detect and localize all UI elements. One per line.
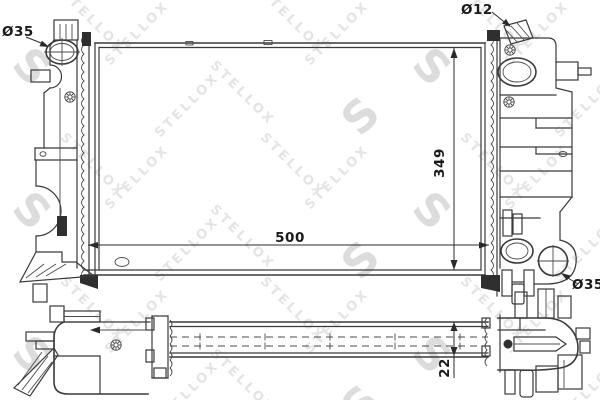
screw-icon: [65, 92, 75, 102]
radiator-drawing: SSTELLOXSTELLOXSTELLOXSSTELLOXSTELLOXSTE…: [0, 0, 600, 400]
dim-depth-label: 22: [437, 358, 453, 378]
watermark-word: STELLOX: [207, 202, 278, 273]
watermark-logo: S: [402, 182, 460, 240]
watermark-logo: S: [332, 87, 390, 145]
watermark-logo: S: [332, 231, 390, 289]
technical-drawing-canvas: SSTELLOXSTELLOXSTELLOXSSTELLOXSTELLOXSTE…: [0, 0, 600, 400]
right-bottom-bracket: [502, 270, 534, 304]
watermark-logo: S: [402, 38, 460, 96]
dia-top-left-text: Ø35: [2, 24, 34, 40]
watermark-word: STELLOX: [152, 70, 223, 141]
radiator-bottom-view: 22: [14, 289, 590, 397]
watermark-logo: S: [332, 375, 390, 400]
dia-top-right-text: Ø12: [461, 2, 493, 18]
dia-bottom-right-text: Ø35: [572, 277, 600, 293]
watermark-logo: S: [2, 326, 60, 384]
watermark-word: STELLOX: [152, 358, 223, 400]
filler-opening-top-right: [498, 58, 536, 86]
watermark-word: STELLOX: [552, 358, 600, 400]
screw-icon: [504, 97, 514, 107]
watermark-word: STELLOX: [552, 70, 600, 141]
watermark-word: STELLOX: [207, 58, 278, 129]
dim-height-label: 349: [432, 148, 448, 178]
dim-width-label: 500: [275, 230, 305, 246]
label-dia-bottom-right: Ø35: [561, 273, 600, 293]
watermark-logo: S: [2, 182, 60, 240]
label-dia-top-left: Ø35: [2, 24, 49, 47]
